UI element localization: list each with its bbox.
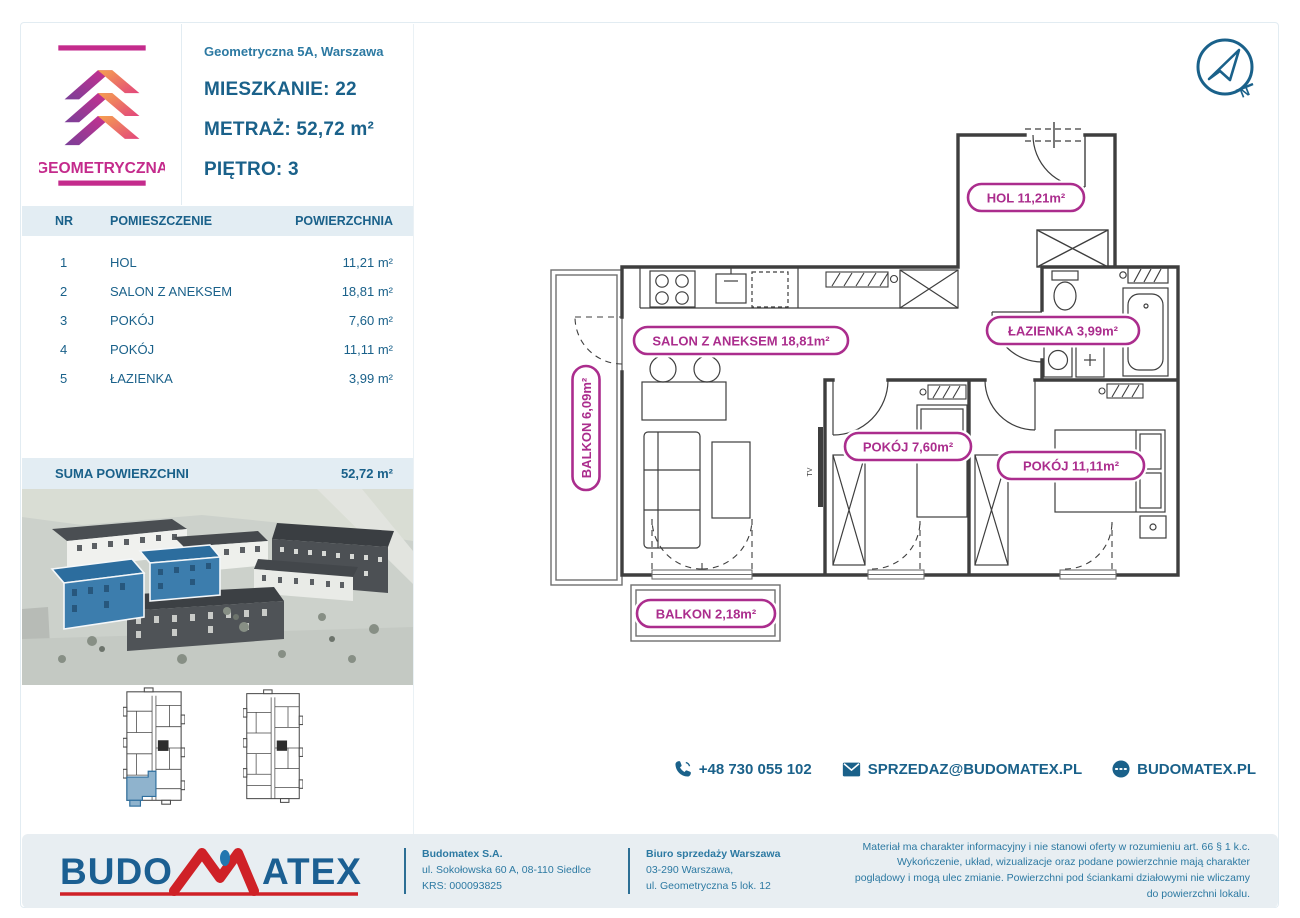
footer-company-column: Budomatex S.A. ul. Sokołowska 60 A, 08-1…: [422, 847, 612, 894]
developer-logo-card: GEOMETRYCZNA: [22, 24, 181, 205]
sum-label: SUMA POWIERZCHNI: [55, 458, 189, 489]
col-header-area: POWIERZCHNIA: [295, 206, 393, 236]
www-globe-icon: [1112, 760, 1130, 778]
row-room-name: POKÓJ: [110, 306, 154, 335]
row-area: 3,99 m²: [349, 364, 393, 393]
table-row: 4 POKÓJ 11,11 m²: [22, 335, 413, 364]
phone-number: +48 730 055 102: [699, 761, 812, 778]
room-labels: HOL 11,21m² SALON Z ANEKSEM 18,81m² ŁAZI…: [573, 184, 1145, 627]
mail-icon: [842, 762, 861, 777]
budomatex-wordmark-right: ATEX: [262, 851, 362, 892]
footer-divider: [628, 848, 630, 894]
room-label-balkon-bottom: BALKON 2,18m²: [656, 607, 757, 622]
row-area: 11,21 m²: [343, 248, 393, 277]
apartment-floor-label: PIĘTRO:: [204, 159, 282, 180]
row-nr: 3: [60, 306, 67, 335]
row-room-name: POKÓJ: [110, 335, 154, 364]
apartment-number-line: MIESZKANIE: 22: [204, 79, 357, 101]
salon-furniture: [642, 356, 750, 548]
company-krs: KRS: 000093825: [422, 879, 612, 895]
apartment-area-value: 52,72 m²: [296, 119, 374, 140]
budomatex-m-mark: [174, 853, 254, 891]
building-floor-key-plan-highlighted: [123, 686, 185, 810]
sales-office-city: 03-290 Warszawa,: [646, 863, 811, 879]
logo-top-bar: [58, 45, 145, 50]
highlighted-apartment-balcony: [130, 800, 141, 806]
apartment-floor-value: 3: [288, 159, 299, 180]
contact-row: +48 730 055 102 SPRZEDAZ@BUDOMATEX.PL BU…: [674, 760, 1256, 778]
brochure-page: GEOMETRYCZNA Geometryczna 5A, Warszawa M…: [0, 0, 1300, 918]
apartment-area-line: METRAŻ: 52,72 m²: [204, 119, 374, 141]
logo-wordmark: GEOMETRYCZNA: [39, 160, 165, 177]
row-area: 7,60 m²: [349, 306, 393, 335]
budomatex-logo: BUDO ATEX: [58, 845, 388, 897]
phone-icon: [674, 760, 692, 778]
room-label-balkon-left: BALKON 6,09m²: [579, 377, 594, 478]
stair-core: [277, 741, 287, 751]
sales-office-street: ul. Geometryczna 5 lok. 12: [646, 879, 811, 895]
budomatex-wordmark-left: BUDO: [60, 851, 173, 892]
logo-geometric-icon: [64, 70, 139, 145]
email-contact[interactable]: SPRZEDAZ@BUDOMATEX.PL: [842, 761, 1082, 778]
email-address: SPRZEDAZ@BUDOMATEX.PL: [868, 761, 1082, 778]
kitchen-radiator: [826, 272, 898, 287]
apartment-floor-plan: TV HOL 11,21m² SALON Z ANEKSEM 18,81m²: [540, 120, 1200, 665]
stair-core: [158, 740, 169, 751]
row-room-name: HOL: [110, 248, 137, 277]
table-row: 5 ŁAZIENKA 3,99 m²: [22, 364, 413, 393]
apartment-header-card: Geometryczna 5A, Warszawa MIESZKANIE: 22…: [182, 24, 413, 205]
logo-bottom-bar: [58, 180, 145, 185]
room-label-pokoj3: POKÓJ 7,60m²: [863, 440, 954, 455]
highlighted-building: [140, 545, 220, 601]
phone-contact[interactable]: +48 730 055 102: [674, 760, 812, 778]
company-address: ul. Sokołowska 60 A, 08-110 Siedlce: [422, 863, 612, 879]
col-header-nr: NR: [55, 206, 73, 236]
building-address: Geometryczna 5A, Warszawa: [204, 44, 383, 59]
apartment-floor-line: PIĘTRO: 3: [204, 159, 299, 181]
footer-bar: BUDO ATEX Budomatex S.A. ul. Sokołowska …: [22, 834, 1278, 908]
legal-disclaimer: Materiał ma charakter informacyjny i nie…: [811, 840, 1278, 903]
area-sum-row: SUMA POWIERZCHNI 52,72 m²: [22, 458, 413, 489]
budomatex-drop: [220, 850, 230, 866]
row-nr: 4: [60, 335, 67, 364]
sales-office-name: Biuro sprzedaży Warszawa: [646, 847, 811, 863]
row-area: 11,11 m²: [344, 335, 393, 364]
sidebar-divider: [413, 24, 414, 834]
tv-label: TV: [807, 467, 814, 476]
row-nr: 5: [60, 364, 67, 393]
rooms-table-header: NR POMIESZCZENIE POWIERZCHNIA: [22, 206, 413, 236]
row-nr: 1: [60, 248, 67, 277]
footer-office-column: Biuro sprzedaży Warszawa 03-290 Warszawa…: [646, 847, 811, 894]
col-header-room: POMIESZCZENIE: [110, 206, 212, 236]
row-room-name: ŁAZIENKA: [110, 364, 173, 393]
compass-north-icon: N: [1192, 34, 1262, 104]
room-label-pokoj4: POKÓJ 11,11m²: [1023, 459, 1120, 474]
row-area: 18,81 m²: [342, 277, 393, 306]
website-url: BUDOMATEX.PL: [1137, 761, 1256, 778]
table-row: 3 POKÓJ 7,60 m²: [22, 306, 413, 335]
building-floor-key-plan: [243, 686, 303, 810]
row-room-name: SALON Z ANEKSEM: [110, 277, 232, 306]
apartment-area-label: METRAŻ:: [204, 119, 291, 140]
table-row: 1 HOL 11,21 m²: [22, 248, 413, 277]
sum-value: 52,72 m²: [341, 458, 393, 489]
room-radiators: [920, 384, 1143, 399]
hall-shaft: [1037, 230, 1108, 267]
highlighted-building: [52, 559, 144, 629]
row-nr: 2: [60, 277, 67, 306]
room-label-salon: SALON Z ANEKSEM 18,81m²: [652, 334, 830, 349]
apartment-number-label: MIESZKANIE:: [204, 79, 330, 100]
company-name: Budomatex S.A.: [422, 847, 612, 863]
table-row: 2 SALON Z ANEKSEM 18,81 m²: [22, 277, 413, 306]
room-label-lazienka: ŁAZIENKA 3,99m²: [1008, 324, 1119, 339]
website-contact[interactable]: BUDOMATEX.PL: [1112, 760, 1256, 778]
room-label-hol: HOL 11,21m²: [987, 191, 1066, 206]
kitchen-cabinet-x: [900, 270, 958, 308]
entrance-door: [1025, 122, 1085, 187]
apartment-number-value: 22: [335, 79, 357, 100]
tv-marker: [818, 427, 823, 507]
room3-furniture: [833, 405, 967, 565]
geometryczna-logo: GEOMETRYCZNA: [39, 37, 165, 193]
rooms-table-body: 1 HOL 11,21 m² 2 SALON Z ANEKSEM 18,81 m…: [22, 236, 413, 458]
estate-aerial-photo: [22, 489, 413, 685]
footer-divider: [404, 848, 406, 894]
